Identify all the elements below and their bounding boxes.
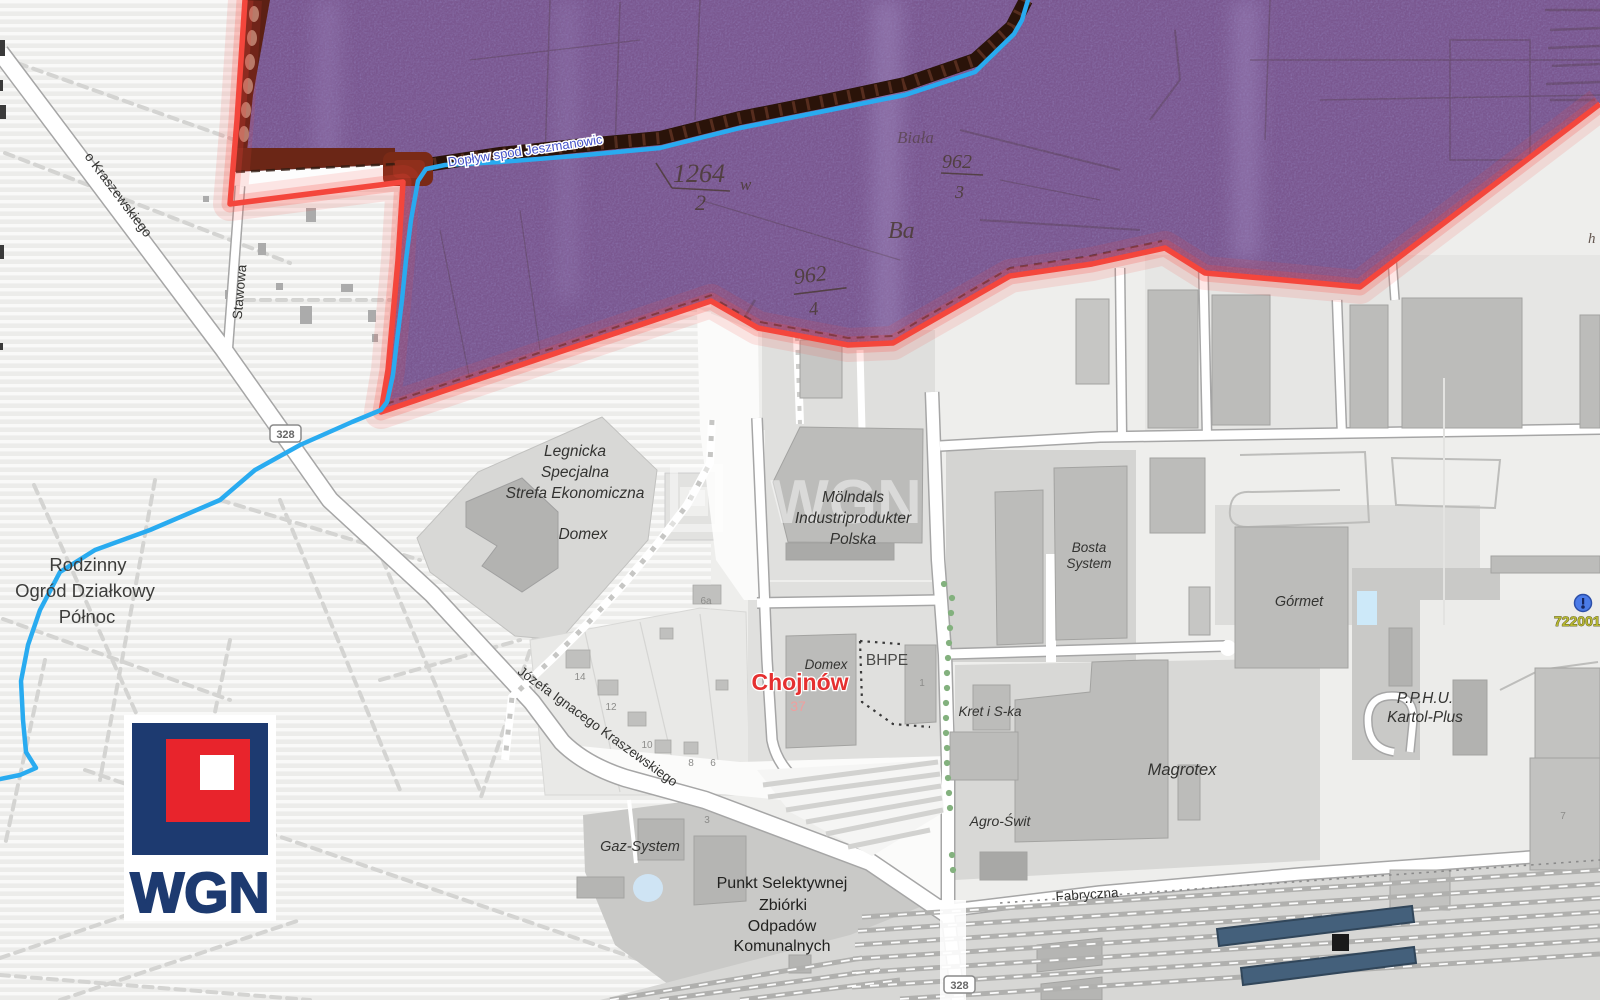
svg-text:Punkt Selektywnej: Punkt Selektywnej <box>717 875 848 892</box>
svg-text:Północ: Północ <box>59 606 116 627</box>
svg-text:Zbiórki: Zbiórki <box>759 897 807 914</box>
svg-text:Komunalnych: Komunalnych <box>734 938 831 955</box>
svg-text:WGN: WGN <box>130 861 269 925</box>
svg-text:Rodzinny: Rodzinny <box>49 554 127 575</box>
svg-text:3: 3 <box>704 815 710 826</box>
svg-text:P.P.H.U.: P.P.H.U. <box>1397 690 1453 707</box>
svg-text:8: 8 <box>688 758 694 769</box>
svg-text:962: 962 <box>792 260 828 289</box>
svg-text:962: 962 <box>942 151 972 173</box>
svg-text:Chojnów: Chojnów <box>751 669 848 695</box>
svg-text:6: 6 <box>710 758 716 769</box>
svg-text:Biała: Biała <box>897 128 934 147</box>
svg-text:Agro-Świt: Agro-Świt <box>969 812 1032 829</box>
svg-text:37: 37 <box>790 698 806 714</box>
svg-text:BHPE: BHPE <box>866 652 908 669</box>
svg-text:3: 3 <box>954 182 964 202</box>
svg-text:Domex: Domex <box>558 526 608 543</box>
svg-text:System: System <box>1066 556 1111 571</box>
svg-text:6a: 6a <box>700 596 712 607</box>
svg-text:Ogród Działkowy: Ogród Działkowy <box>15 580 156 601</box>
svg-text:7: 7 <box>1560 811 1566 822</box>
svg-text:Industriprodukter: Industriprodukter <box>795 510 912 527</box>
svg-text:328: 328 <box>950 980 968 992</box>
svg-text:Bosta: Bosta <box>1072 540 1107 555</box>
svg-text:Odpadów: Odpadów <box>748 918 817 935</box>
svg-text:Mölndals: Mölndals <box>822 489 884 506</box>
svg-text:Ba: Ba <box>888 218 915 244</box>
svg-text:1: 1 <box>919 678 925 689</box>
svg-text:h: h <box>1588 231 1596 247</box>
svg-text:2: 2 <box>695 190 706 215</box>
svg-text:1264: 1264 <box>673 159 725 188</box>
svg-text:Specjalna: Specjalna <box>541 464 609 481</box>
svg-text:Strefa Ekonomiczna: Strefa Ekonomiczna <box>506 485 645 502</box>
svg-text:12: 12 <box>605 702 617 713</box>
svg-text:Kartol-Plus: Kartol-Plus <box>1387 709 1463 726</box>
svg-text:Kret i S-ka: Kret i S-ka <box>958 704 1022 719</box>
svg-text:Górmet: Górmet <box>1275 594 1324 610</box>
svg-text:328: 328 <box>276 429 294 441</box>
svg-text:w: w <box>740 175 752 194</box>
svg-text:Gaz-System: Gaz-System <box>600 839 680 855</box>
svg-text:7220012: 7220012 <box>1554 613 1600 629</box>
svg-text:Magrotex: Magrotex <box>1148 761 1218 779</box>
svg-text:Legnicka: Legnicka <box>544 443 606 460</box>
svg-text:14: 14 <box>574 672 586 683</box>
svg-text:Polska: Polska <box>830 531 877 548</box>
